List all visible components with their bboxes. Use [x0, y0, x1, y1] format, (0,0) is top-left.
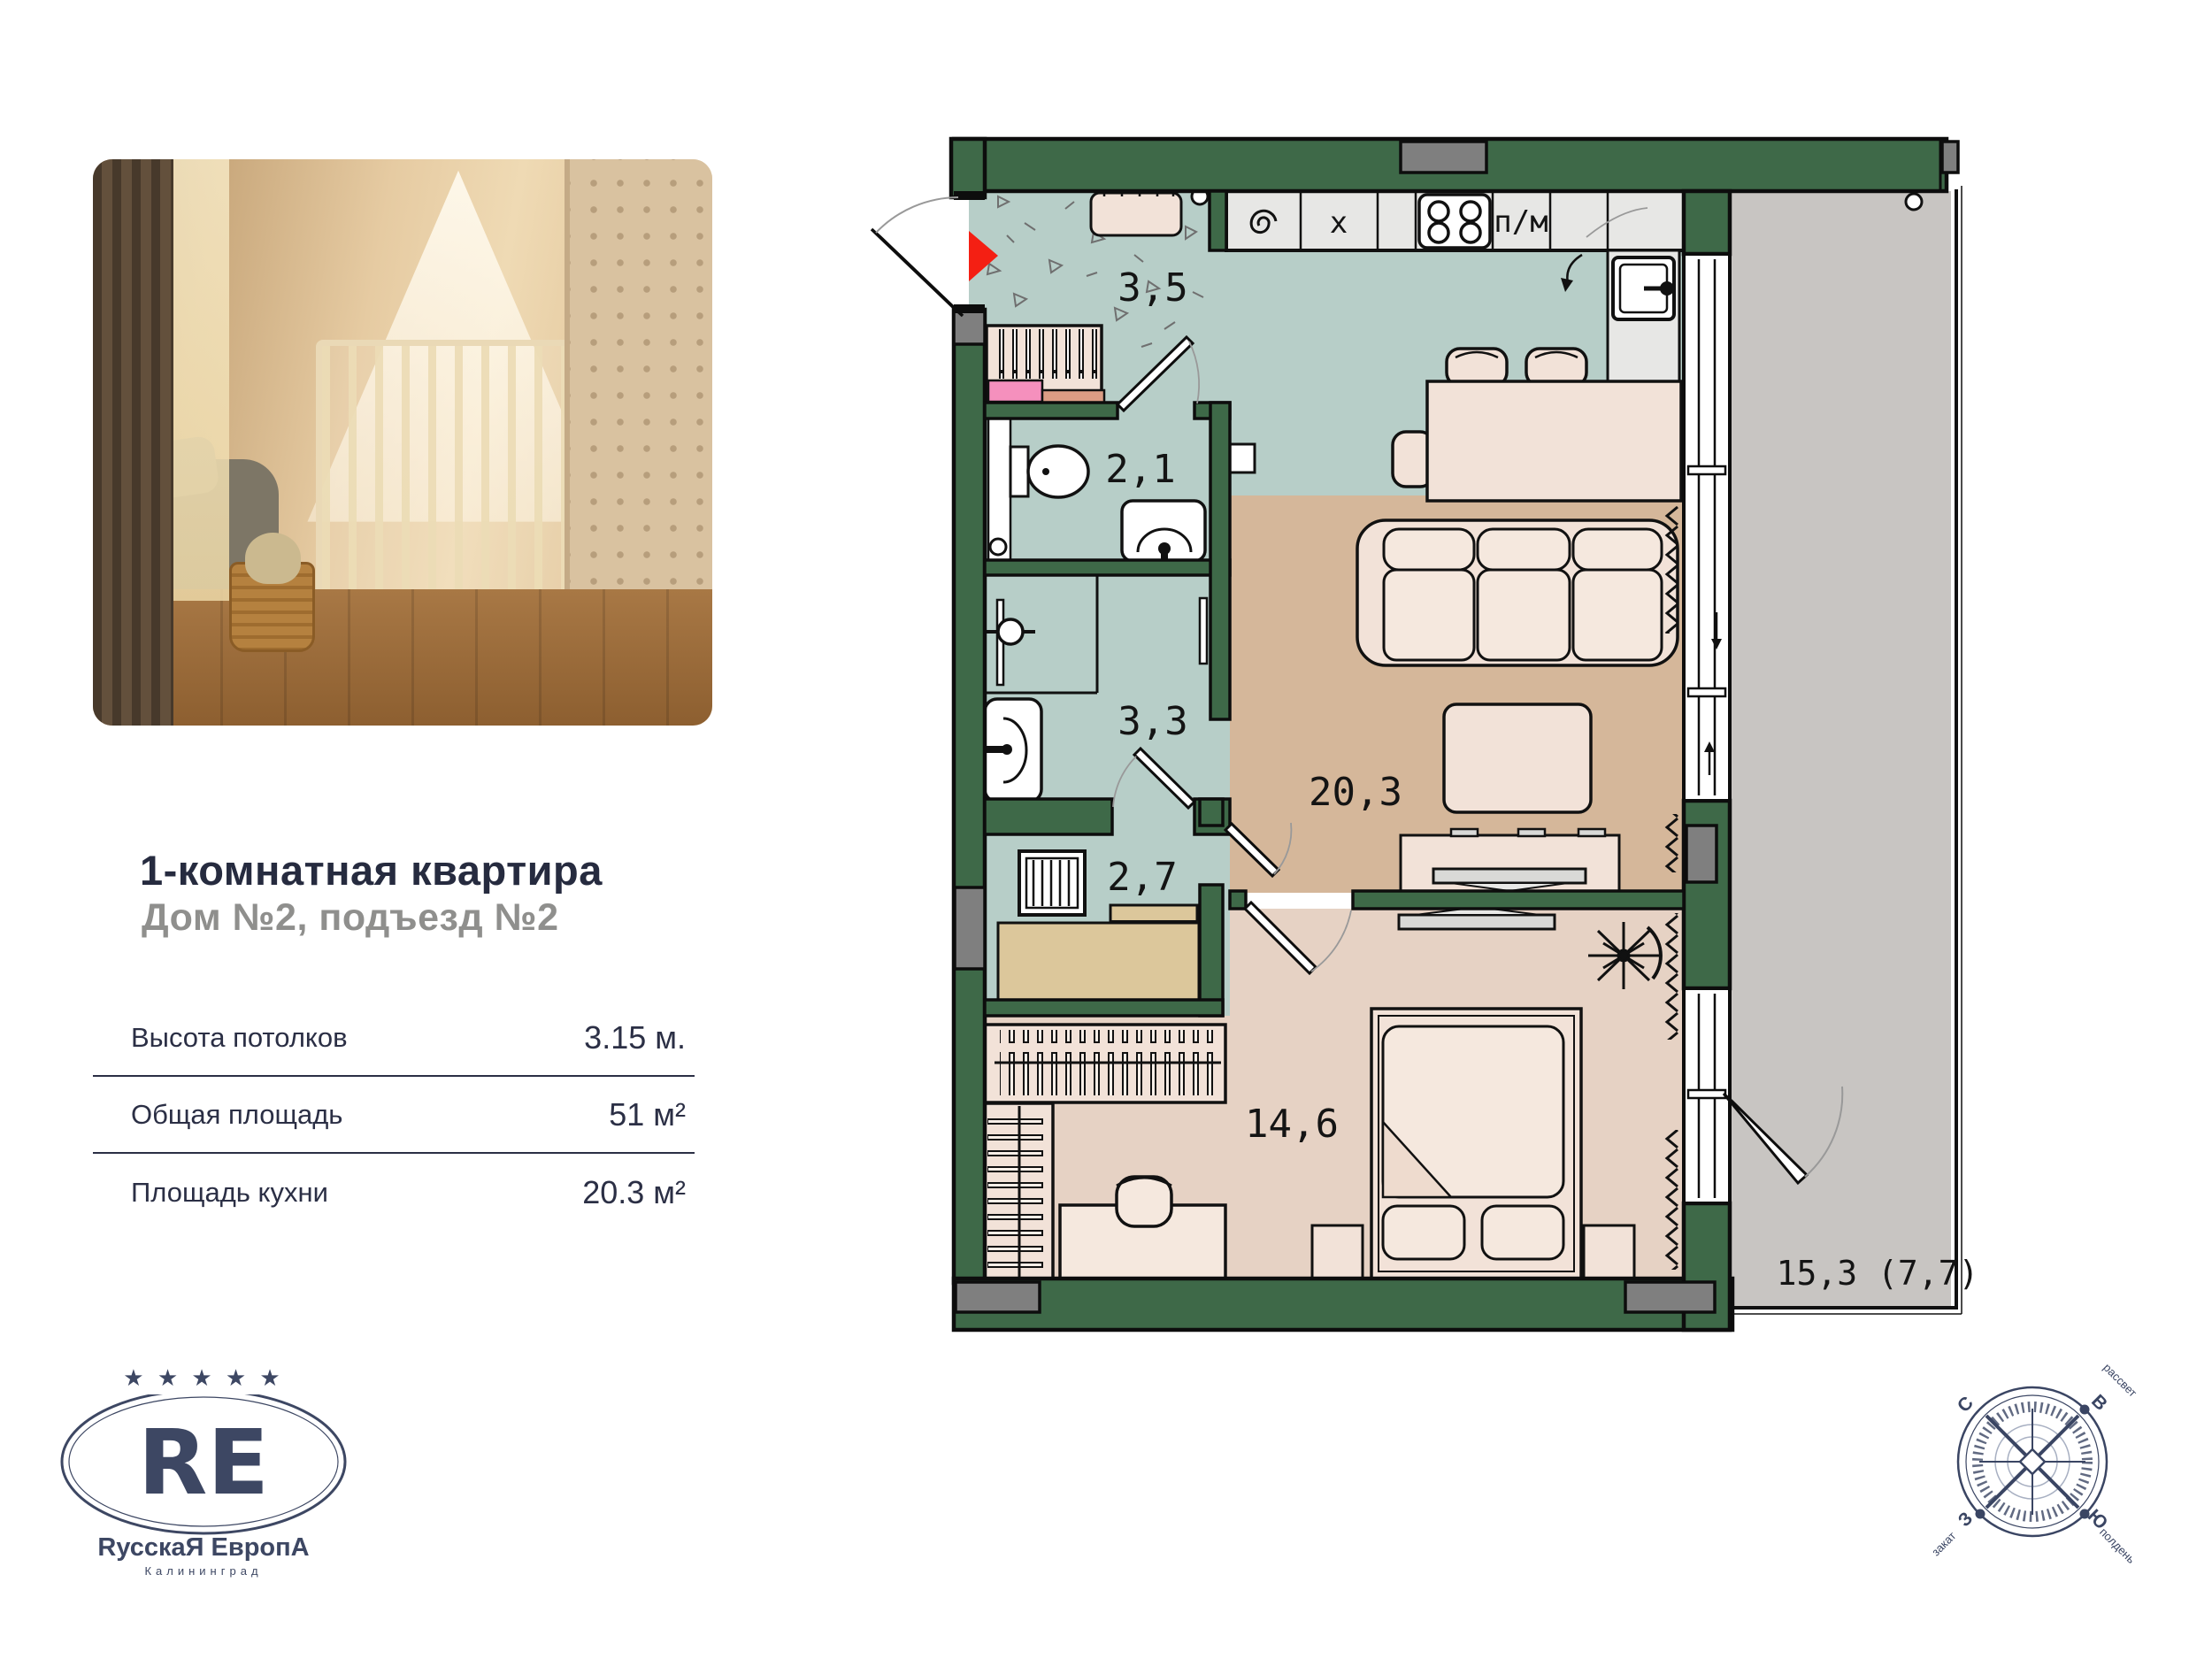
- room-label-balcony: 15,3 (7,7): [1777, 1254, 1979, 1293]
- room-label-shower-room: 3,3: [1118, 699, 1187, 744]
- entry-door-leaf: [872, 229, 963, 316]
- flat-card-page: 1-комнатная квартира Дом №2, подъезд №2 …: [0, 0, 2212, 1659]
- desk-chair: [1117, 1177, 1171, 1226]
- compass-north-label: С: [1954, 1393, 1978, 1417]
- shower-head: [998, 619, 1023, 644]
- hall-bench: [1091, 193, 1181, 235]
- wall-left-upper: [951, 139, 985, 197]
- room-label-kitchen-living: 20,3: [1309, 770, 1402, 815]
- living-window: [1684, 254, 1730, 801]
- wall-bottom: [954, 1279, 1732, 1330]
- room-label-storage: 2,7: [1107, 855, 1177, 900]
- dishwasher-label: п/м: [1494, 204, 1548, 240]
- plant: [1588, 922, 1661, 989]
- compass-sunset-label: закат: [1929, 1529, 1958, 1558]
- compass-west-label: З: [1955, 1509, 1978, 1532]
- tv-living: [1433, 869, 1586, 883]
- dining-table: [1427, 381, 1681, 501]
- compass: С В рассвет З закат Ю полдень: [1929, 1361, 2139, 1566]
- toilet: [1028, 446, 1088, 497]
- appliance-x-label: x: [1330, 205, 1348, 241]
- compass-noon-label: полдень: [2097, 1525, 2138, 1566]
- wall-right-a: [1684, 191, 1730, 254]
- tv-bedroom: [1399, 915, 1555, 929]
- compass-dawn-label: рассвет: [2101, 1361, 2139, 1400]
- balcony-drain: [1906, 194, 1922, 210]
- room-label-bedroom: 14,6: [1245, 1102, 1339, 1147]
- room-label-bathroom: 2,1: [1105, 447, 1175, 492]
- compass-east-label: В: [2087, 1391, 2111, 1415]
- room-label-hallway: 3,5: [1118, 265, 1187, 311]
- wall-console: [1228, 444, 1255, 472]
- storage-cabinet: [998, 923, 1199, 1000]
- nightstand: [1312, 1225, 1363, 1279]
- towel-rail: [1200, 598, 1207, 664]
- pillow: [1383, 1206, 1464, 1259]
- pillow: [1482, 1206, 1563, 1259]
- stove: [1419, 195, 1490, 248]
- wall-left: [954, 310, 985, 1283]
- coffee-table: [1444, 704, 1591, 812]
- floor-plan: x п/м: [0, 0, 2212, 1659]
- nightstand: [1584, 1225, 1634, 1279]
